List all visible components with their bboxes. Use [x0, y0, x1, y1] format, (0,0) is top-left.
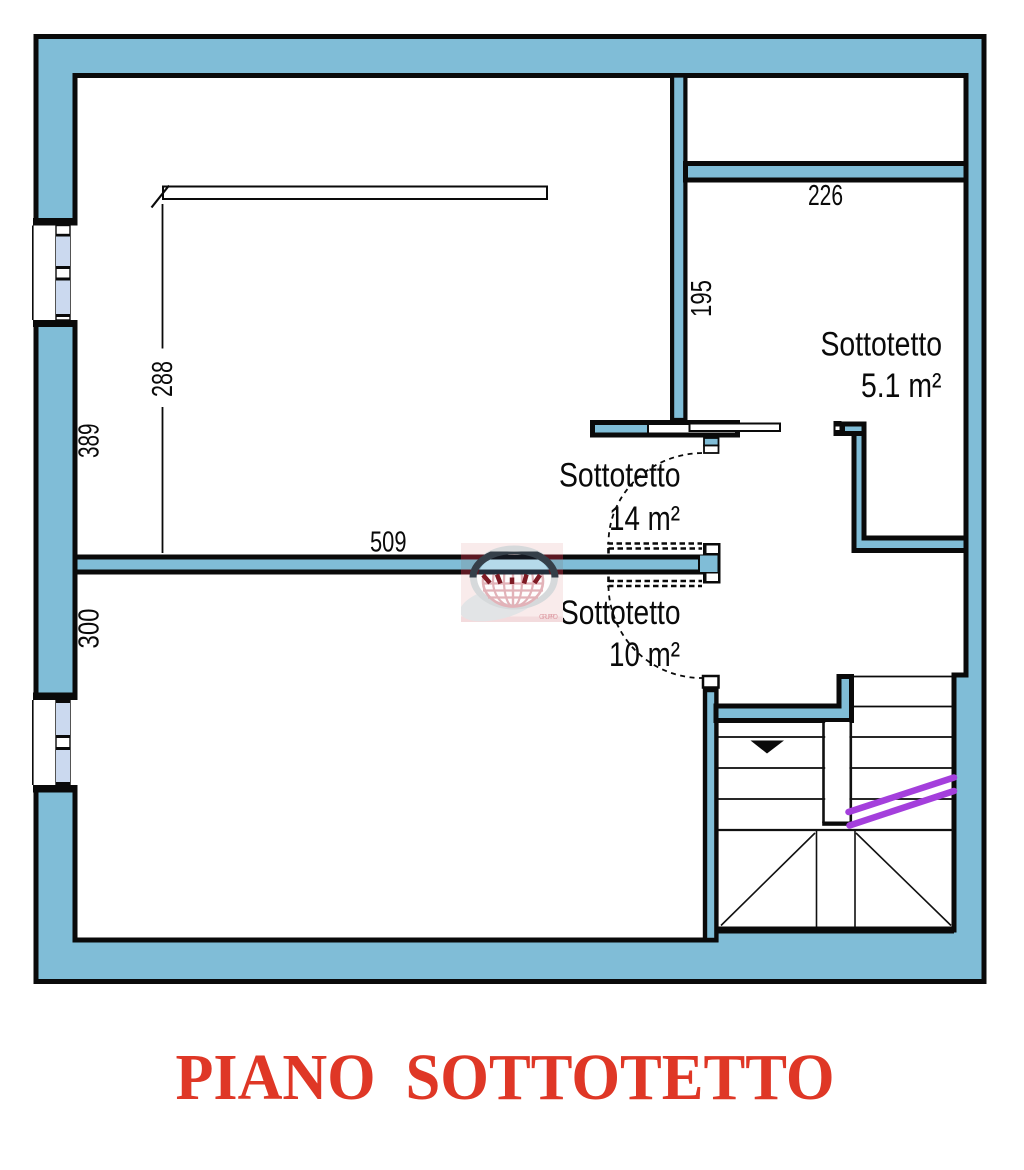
svg-text:GRUPPO: GRUPPO	[539, 614, 559, 621]
svg-text:509: 509	[370, 527, 407, 559]
svg-text:5.1 m²: 5.1 m²	[861, 367, 942, 405]
svg-text:Sottotetto: Sottotetto	[559, 457, 681, 495]
svg-text:PIANO: PIANO	[176, 1042, 376, 1114]
svg-text:SOTTOTETTO: SOTTOTETTO	[406, 1042, 835, 1114]
svg-text:226: 226	[808, 180, 843, 212]
svg-text:195: 195	[686, 280, 718, 317]
svg-text:10 m²: 10 m²	[609, 636, 680, 674]
svg-text:14 m²: 14 m²	[609, 500, 680, 538]
svg-text:389: 389	[74, 424, 106, 459]
svg-text:Sottotetto: Sottotetto	[560, 594, 681, 632]
svg-text:Sottotetto: Sottotetto	[821, 326, 943, 364]
svg-text:288: 288	[147, 361, 179, 397]
svg-text:300: 300	[74, 609, 106, 649]
